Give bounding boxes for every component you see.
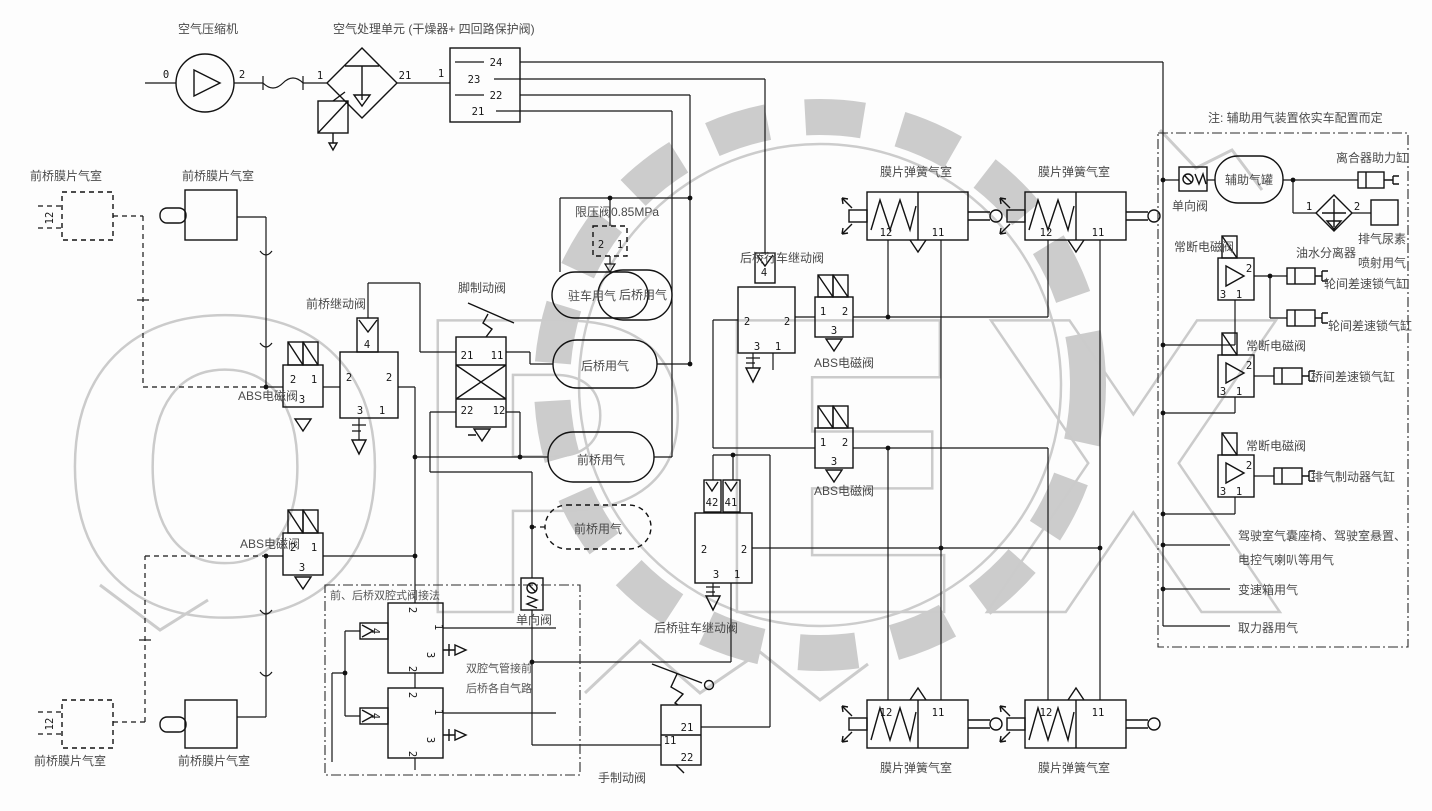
foot-brake-label: 脚制动阀 [458,280,506,295]
port-number: 2 [598,239,604,251]
port-number: 1 [432,624,444,630]
wheel-diff-lock-label: 轮间差速锁气缸 [1324,276,1408,291]
cab-air-label: 电控气喇叭等用气 [1238,552,1334,567]
port-number: 2 [406,692,418,698]
spring-chamber-label: 膜片弹簧气室 [1038,164,1110,179]
tank-front-label: 前桥用气 [577,452,625,467]
pto-air-label: 取力器用气 [1238,620,1298,635]
port-number: 12 [880,707,893,719]
air-compressor-icon [176,54,234,112]
port-number: 22 [681,752,694,764]
air-dryer-icon [318,48,397,150]
port-number: 24 [490,57,503,69]
port-number: 2 [701,544,707,556]
port-number: 1 [317,70,323,82]
front-chamber-label: 前桥膜片气室 [182,168,254,183]
front-chamber-label: 前桥膜片气室 [30,168,102,183]
abs-valve-label: ABS电磁阀 [814,355,874,370]
tank-rear-label: 后桥用气 [581,358,629,373]
check-valve-icon [1179,167,1207,191]
port-number: 1 [617,239,623,251]
port-number: 3 [1220,486,1226,498]
port-number: 3 [299,394,305,406]
port-number: 2 [1246,360,1252,372]
port-number: 3 [713,569,719,581]
port-number: 21 [681,722,694,734]
gearbox-air-label: 变速箱用气 [1238,582,1298,597]
abs-valve-label: ABS电磁阀 [238,388,298,403]
watermark-text: OPEX [55,242,1294,707]
port-number: 11 [1092,227,1105,239]
clutch-cylinder-label: 离合器助力缸 [1336,150,1408,165]
port-number: 1 [432,709,444,715]
four-circuit-valve-icon [450,48,520,122]
front-diaphragm-chamber-dashed-icon [62,192,113,240]
port-number: 12 [44,212,56,225]
rear-parking-relay-label: 后桥驻车继动阀 [654,620,738,635]
port-number: 2 [842,437,848,449]
port-number: 1 [438,68,444,80]
port-number: 0 [163,69,169,81]
port-number: 1 [379,405,385,417]
port-number: 2 [1354,201,1360,213]
solenoid-label: 常断电磁阀 [1246,438,1306,453]
aux-tank-label: 辅助气罐 [1225,172,1273,187]
port-number: 1 [311,542,317,554]
compressor-label: 空气压缩机 [178,21,238,36]
tank-rear-label: 后桥用气 [619,287,667,302]
tank-front-label: 前桥用气 [574,521,622,536]
schematic-canvas: OPEX [0,0,1432,811]
front-diaphragm-chamber-dashed-icon [62,700,113,748]
panel-note-label: 注: 辅助用气装置依实车配置而定 [1208,110,1383,125]
abs-valve-label: ABS电磁阀 [814,483,874,498]
spring-chamber-label: 膜片弹簧气室 [880,760,952,775]
air-unit-label: 空气处理单元 (干燥器+ 四回路保护阀) [333,21,535,36]
port-number: 3 [831,456,837,468]
spring-chamber-label: 膜片弹簧气室 [1038,760,1110,775]
port-number: 3 [299,562,305,574]
port-number: 2 [290,542,296,554]
port-number: 2 [406,607,418,613]
port-number: 2 [290,374,296,386]
port-number: 2 [741,544,747,556]
port-number: 2 [842,306,848,318]
port-number: 2 [386,372,392,384]
port-number: 11 [1092,707,1105,719]
port-number: 2 [784,316,790,328]
exhaust-brake-label: 排气制动器气缸 [1311,469,1395,484]
port-number: 3 [831,325,837,337]
port-number: 12 [880,227,893,239]
port-number: 2 [346,372,352,384]
port-number: 2 [406,751,418,757]
port-number: 2 [1246,460,1252,472]
detail-note-label: 后桥各自气路 [466,681,532,695]
port-number: 1 [775,341,781,353]
hand-brake-label: 手制动阀 [598,771,646,785]
port-number: 1 [734,569,740,581]
port-number: 12 [1040,227,1053,239]
port-number: 1 [820,437,826,449]
port-number: 2 [406,666,418,672]
front-diaphragm-chamber-icon [160,700,237,748]
port-number: 12 [1040,707,1053,719]
port-number: 22 [490,90,503,102]
port-number: 3 [424,737,436,743]
port-number: 21 [461,350,474,362]
clutch-cylinder-icon [1358,172,1399,188]
port-number: 11 [664,735,677,747]
port-number: 3 [424,652,436,658]
rear-service-relay-label: 后桥行车继动阀 [740,250,824,265]
port-number: 41 [725,497,738,509]
port-number: 22 [461,405,474,417]
check-valve-label: 单向阀 [516,612,552,627]
port-number: 1 [1236,289,1242,301]
port-number: 1 [820,306,826,318]
solenoid-label: 常断电磁阀 [1246,338,1306,353]
urea-label: 喷射用气 [1358,255,1406,270]
tank-parking-label: 驻车用气 [568,288,616,303]
port-number: 3 [1220,289,1226,301]
port-number: 4 [761,267,767,279]
port-number: 1 [1236,386,1242,398]
pneumatic-schematic: OPEX [0,0,1432,811]
port-number: 4 [369,628,381,634]
solenoid-label: 常断电磁阀 [1174,239,1234,254]
port-number: 21 [399,70,412,82]
port-number: 1 [1306,201,1312,213]
urea-device-icon [1371,200,1398,225]
port-number: 2 [744,316,750,328]
watermark-layer: OPEX [55,117,1294,707]
port-number: 12 [44,718,56,731]
separator-label: 油水分离器 [1296,245,1356,260]
port-number: 3 [754,341,760,353]
detail-note-label: 双腔气管接前 [466,661,532,675]
port-number: 2 [239,69,245,81]
wheel-diff-lock-label: 轮间差速锁气缸 [1328,318,1412,333]
port-number: 12 [493,405,506,417]
port-number: 11 [491,350,504,362]
detail-header-label: 前、后桥双腔式阀接法 [330,588,440,602]
cab-air-label: 驾驶室气囊座椅、驾驶室悬置、 [1238,528,1406,543]
port-number: 1 [1236,486,1242,498]
port-number: 3 [1220,386,1226,398]
front-relay-label: 前桥继动阀 [306,296,366,311]
limit-valve-label: 限压阀0.85MPa [575,205,659,219]
urea-label: 排气尿素 [1358,231,1406,246]
port-number: 1 [311,374,317,386]
port-number: 4 [369,713,381,719]
front-chamber-label: 前桥膜片气室 [34,753,106,768]
front-diaphragm-chamber-icon [160,190,237,240]
port-number: 42 [706,497,719,509]
port-number: 2 [1246,263,1252,275]
port-number: 11 [932,227,945,239]
port-number: 4 [364,339,370,351]
port-number: 21 [472,106,485,118]
port-number: 23 [468,74,481,86]
front-chamber-label: 前桥膜片气室 [178,753,250,768]
port-number: 11 [932,707,945,719]
axle-diff-lock-label: 桥间差速锁气缸 [1311,369,1395,384]
oil-water-separator-icon [1316,195,1352,231]
check-valve-label: 单向阀 [1172,198,1208,213]
spring-chamber-label: 膜片弹簧气室 [880,164,952,179]
port-number: 3 [357,405,363,417]
